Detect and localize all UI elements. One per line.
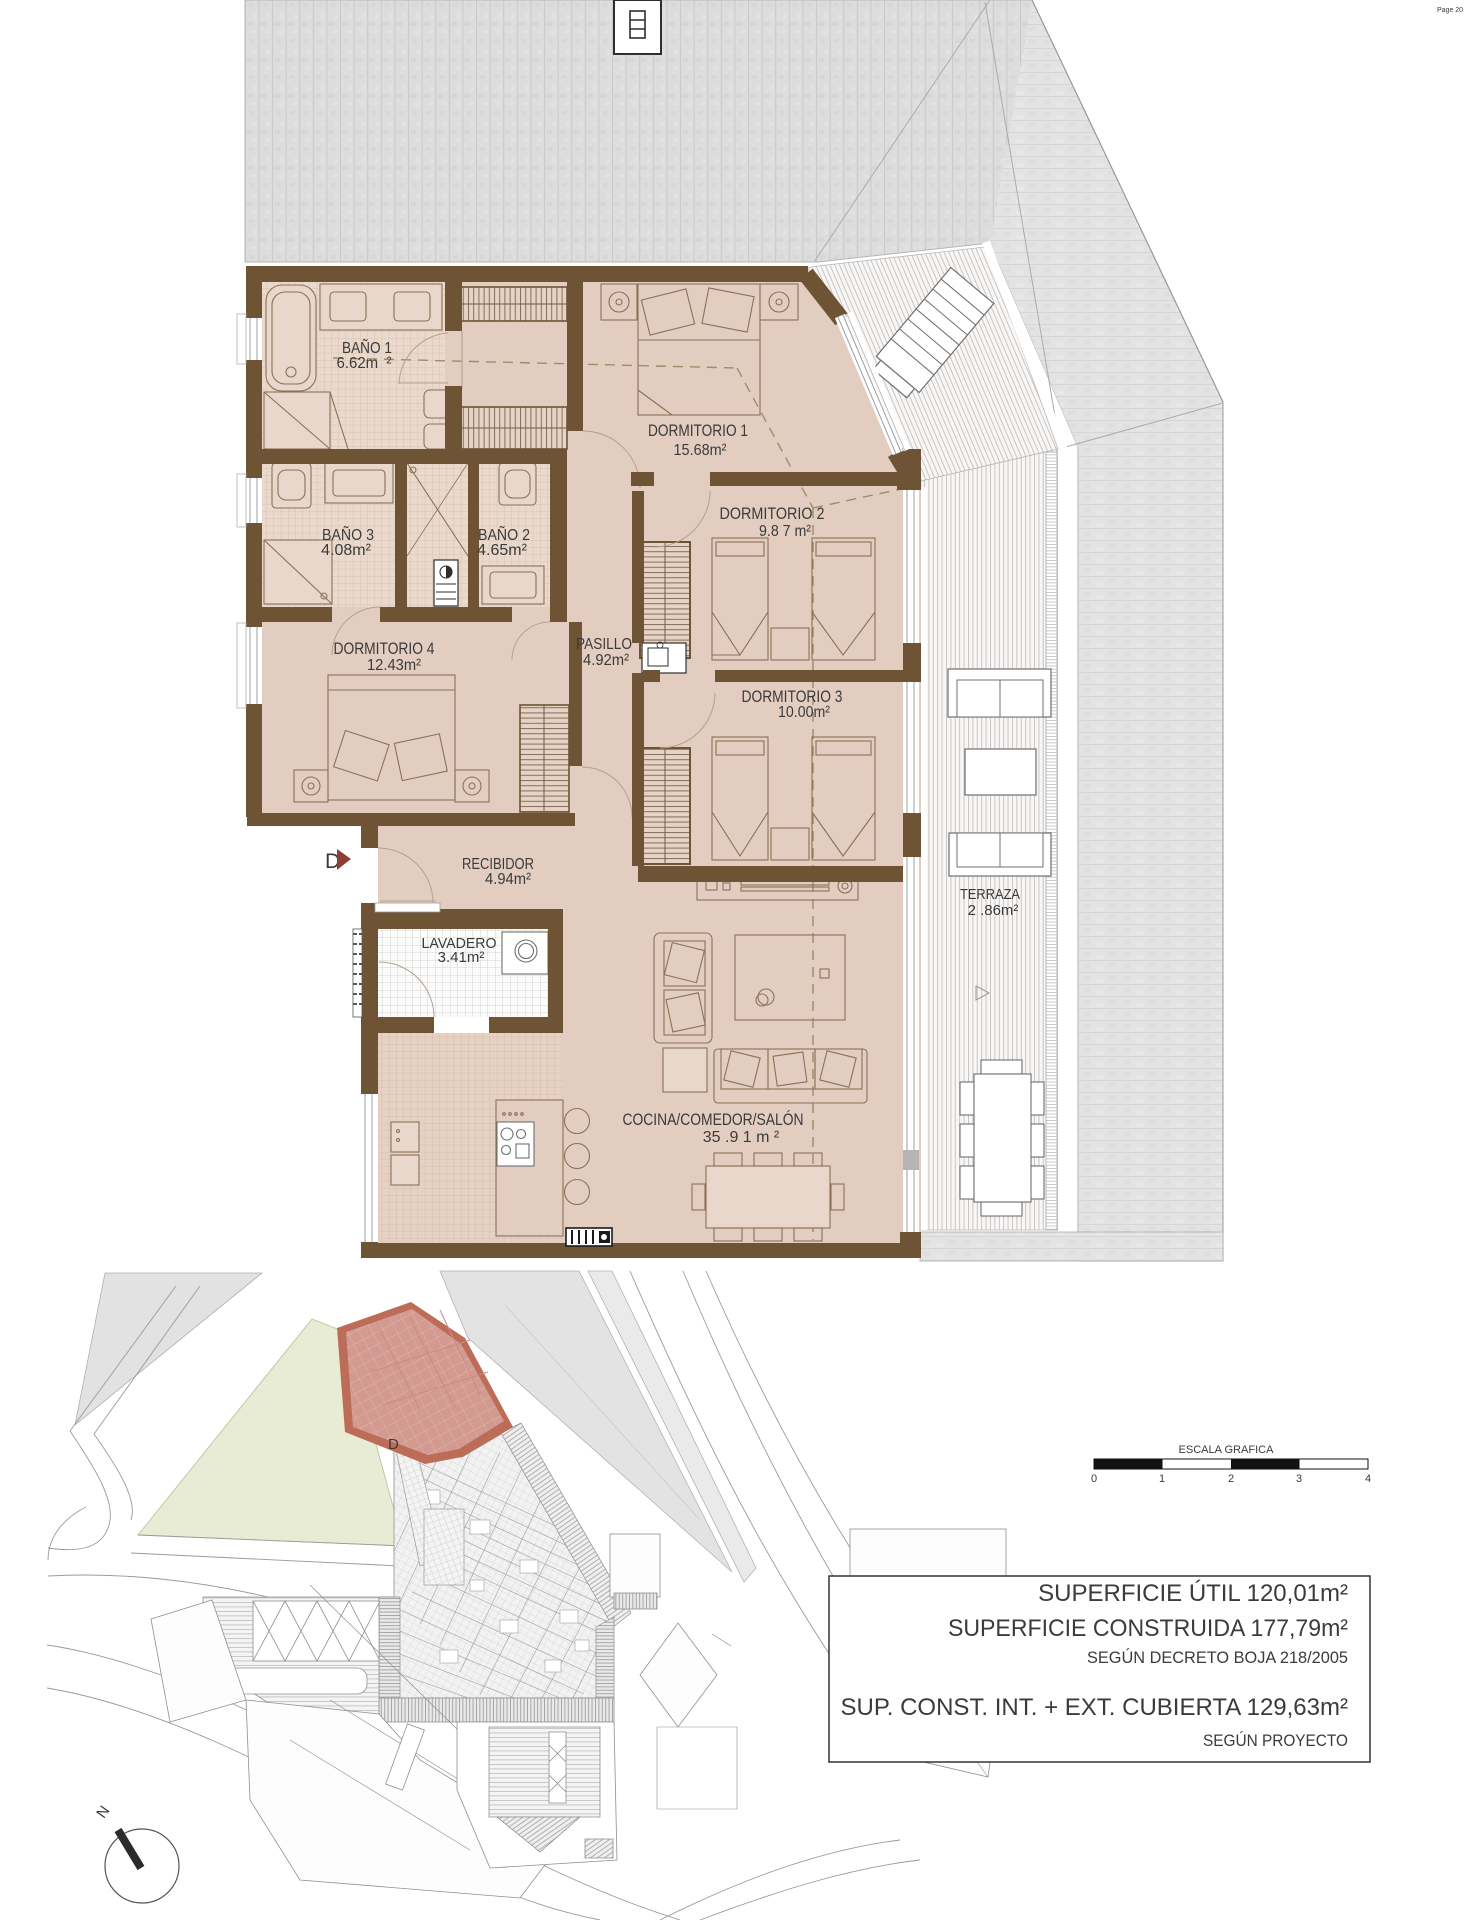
svg-text:4.94m²: 4.94m² — [485, 871, 532, 888]
svg-text:12.43m²: 12.43m² — [367, 657, 422, 674]
svg-text:4: 4 — [1365, 1473, 1371, 1485]
svg-text:DORMITORIO 4: DORMITORIO 4 — [334, 639, 435, 658]
svg-text:SUPERFICIE ÚTIL 120,01m²: SUPERFICIE ÚTIL 120,01m² — [1038, 1580, 1348, 1607]
svg-text:1: 1 — [1159, 1473, 1165, 1485]
svg-text:SUPERFICIE CONSTRUIDA 177,79m: SUPERFICIE CONSTRUIDA 177,79m² — [948, 1615, 1348, 1642]
svg-text:4.08m²: 4.08m² — [321, 542, 371, 559]
svg-text:0: 0 — [1091, 1473, 1097, 1485]
svg-text:ESCALA GRAFICA: ESCALA GRAFICA — [1179, 1444, 1275, 1456]
svg-text:15.68m²: 15.68m² — [674, 442, 728, 459]
svg-text:3: 3 — [1296, 1473, 1302, 1485]
svg-text:4.65m²: 4.65m² — [477, 542, 527, 559]
svg-text:COCINA/COMEDOR/SALÓN: COCINA/COMEDOR/SALÓN — [623, 1110, 804, 1129]
svg-text:35 .9 1 m ²: 35 .9 1 m ² — [703, 1129, 780, 1146]
svg-text:9.8 7 m²: 9.8 7 m² — [759, 523, 812, 540]
svg-text:4.92m²: 4.92m² — [583, 652, 630, 669]
svg-text:SEGÚN PROYECTO: SEGÚN PROYECTO — [1203, 1731, 1348, 1750]
svg-text:TERRAZA: TERRAZA — [960, 886, 1020, 903]
svg-text:2 .86m²: 2 .86m² — [968, 902, 1019, 919]
svg-text:SUP. CONST. INT. + EXT. CUBIER: SUP. CONST. INT. + EXT. CUBIERTA 129,63m… — [840, 1694, 1348, 1721]
svg-text:BAÑO 3: BAÑO 3 — [322, 524, 374, 544]
svg-text:6.62m ²: 6.62m ² — [337, 355, 393, 372]
svg-text:BAÑO 1: BAÑO 1 — [342, 337, 392, 357]
svg-text:10.00m²: 10.00m² — [778, 704, 831, 721]
svg-text:BAÑO 2: BAÑO 2 — [478, 524, 530, 544]
svg-text:Page 20: Page 20 — [1437, 7, 1463, 14]
svg-text:SEGÚN DECRETO BOJA 218/2005: SEGÚN DECRETO BOJA 218/2005 — [1087, 1648, 1348, 1667]
svg-text:D: D — [388, 1436, 399, 1453]
svg-text:DORMITORIO 1: DORMITORIO 1 — [648, 421, 748, 440]
svg-text:DORMITORIO 2: DORMITORIO 2 — [720, 504, 825, 523]
svg-text:3.41m²: 3.41m² — [438, 949, 485, 966]
svg-text:PASILLO: PASILLO — [576, 636, 632, 653]
svg-text:2: 2 — [1228, 1473, 1234, 1485]
